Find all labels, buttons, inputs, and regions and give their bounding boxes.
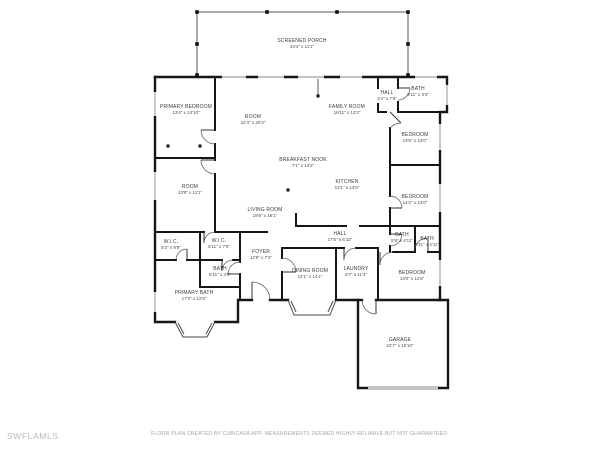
wall-posts bbox=[167, 10, 410, 191]
bay-windows bbox=[175, 300, 336, 337]
disclaimer-text: FLOOR PLAN CREATED BY CUBICASA APP. MEAS… bbox=[0, 431, 600, 437]
walls-interior bbox=[155, 77, 447, 300]
floor-plan: SCREENED PORCH44'4" x 11'1"PRIMARY BEDRO… bbox=[0, 0, 600, 450]
door-swings bbox=[176, 88, 428, 314]
floor-plan-svg bbox=[0, 0, 600, 450]
porch-walls bbox=[197, 12, 408, 77]
